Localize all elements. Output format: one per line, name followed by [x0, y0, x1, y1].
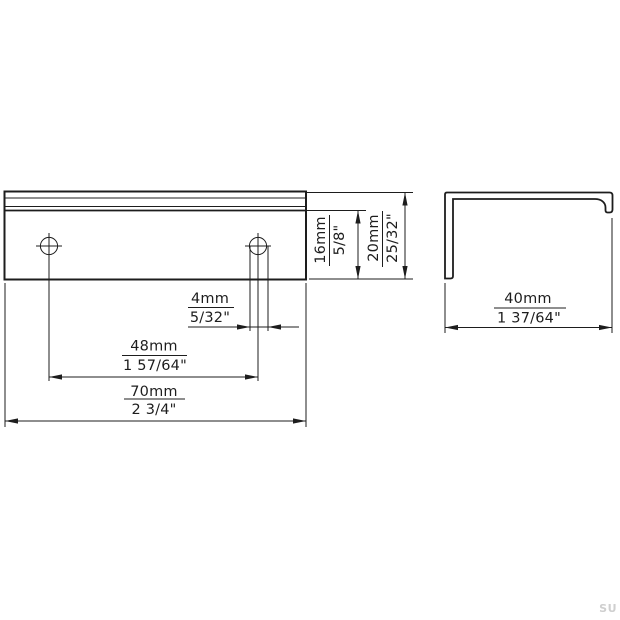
- arrowhead: [445, 325, 458, 330]
- front-face-outline: [5, 192, 307, 280]
- arrowhead: [355, 266, 360, 279]
- arrowhead: [49, 374, 62, 379]
- dim-label-inch: 1 37/64": [497, 311, 561, 327]
- dim-label-mm: 70mm: [130, 384, 178, 400]
- arrowhead: [245, 374, 258, 379]
- dim-label-mm: 48mm: [130, 339, 178, 355]
- dim-label-mm: 40mm: [504, 291, 552, 307]
- arrowhead: [5, 418, 18, 423]
- front-view: [5, 192, 307, 280]
- handle-dimension-drawing: 4mm 5/32" 48mm 1 57/64" 70mm 2 3/4": [0, 0, 620, 620]
- arrowhead: [268, 324, 281, 329]
- dimension-depth: 40mm 1 37/64": [445, 218, 612, 333]
- arrowhead: [293, 418, 306, 423]
- arrowhead: [402, 266, 407, 279]
- dim-label-mm: 16mm: [313, 216, 329, 264]
- arrowhead: [355, 211, 360, 224]
- dimension-hole-diameter: 4mm 5/32": [188, 246, 299, 331]
- dim-label-mm: 4mm: [191, 291, 229, 307]
- side-profile-outline: [445, 193, 613, 279]
- dim-label-inch: 1 57/64": [123, 358, 187, 374]
- side-view: [445, 193, 613, 279]
- dim-label-inch: 25/32": [385, 213, 401, 263]
- dim-label-inch: 2 3/4": [131, 402, 176, 418]
- arrowhead: [599, 325, 612, 330]
- arrowhead: [237, 324, 250, 329]
- dim-label-inch: 5/32": [190, 310, 230, 326]
- dimension-face-height: 16mm 5/8": [306, 211, 366, 280]
- dim-label-mm: 20mm: [366, 214, 382, 262]
- arrowhead: [402, 193, 407, 206]
- technical-drawing-page: 4mm 5/32" 48mm 1 57/64" 70mm 2 3/4": [0, 0, 620, 620]
- dim-label-inch: 5/8": [332, 225, 348, 256]
- watermark-text: SU: [599, 602, 617, 615]
